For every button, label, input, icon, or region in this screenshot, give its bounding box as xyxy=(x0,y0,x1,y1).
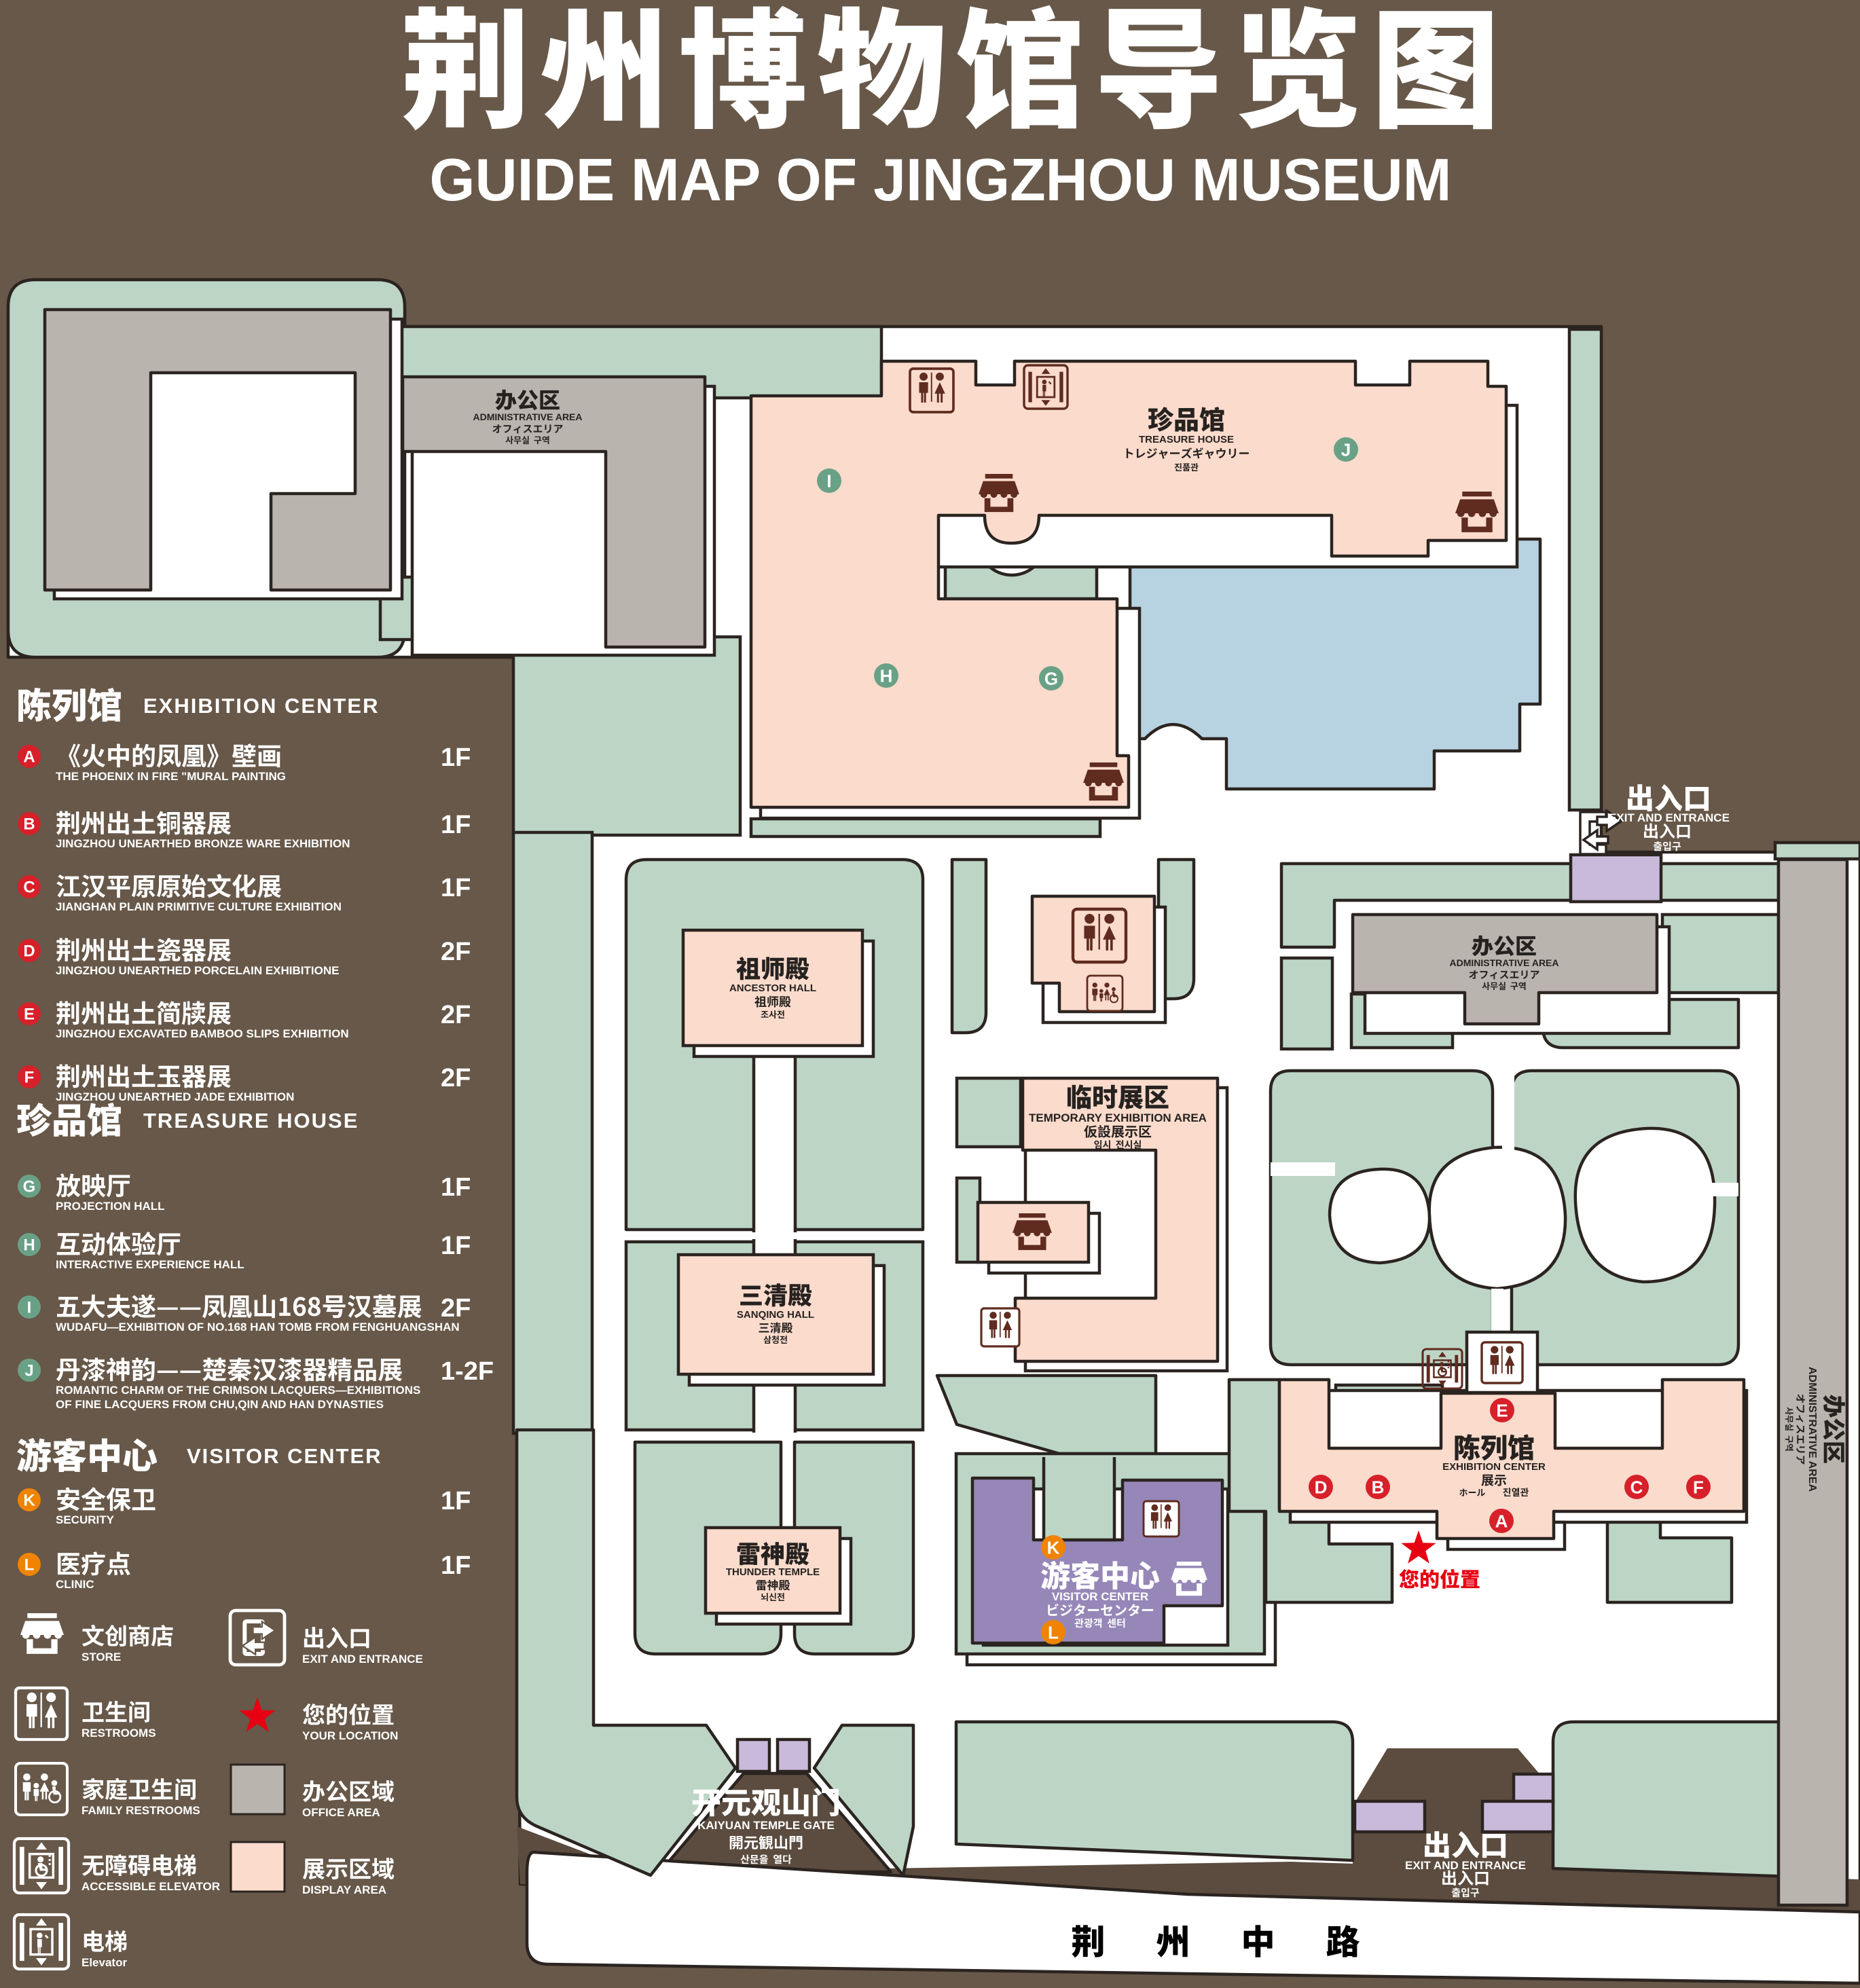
svg-text:DISPLAY AREA: DISPLAY AREA xyxy=(302,1883,386,1896)
svg-text:B: B xyxy=(1372,1477,1385,1497)
svg-text:EXIT AND ENTRANCE: EXIT AND ENTRANCE xyxy=(1405,1859,1526,1872)
svg-text:1F: 1F xyxy=(441,1232,471,1260)
svg-text:TREASURE HOUSE: TREASURE HOUSE xyxy=(143,1109,359,1133)
svg-text:1F: 1F xyxy=(441,1487,471,1515)
svg-text:JINGZHOU UNEARTHED PORCELAIN E: JINGZHOU UNEARTHED PORCELAIN EXHIBITIONE xyxy=(56,964,339,977)
svg-text:1F: 1F xyxy=(441,1551,471,1580)
svg-text:EXIT AND ENTRANCE: EXIT AND ENTRANCE xyxy=(1609,811,1730,824)
svg-text:INTERACTIVE EXPERIENCE HALL: INTERACTIVE EXPERIENCE HALL xyxy=(56,1258,244,1271)
svg-text:1F: 1F xyxy=(441,1173,471,1202)
svg-text:I: I xyxy=(826,471,831,491)
svg-text:Elevator: Elevator xyxy=(81,1956,127,1969)
svg-text:H: H xyxy=(880,665,893,686)
svg-text:G: G xyxy=(1044,668,1058,688)
svg-text:CLINIC: CLINIC xyxy=(56,1578,94,1591)
svg-text:E: E xyxy=(1496,1400,1508,1420)
svg-text:SECURITY: SECURITY xyxy=(56,1513,115,1526)
svg-text:VISITOR CENTER: VISITOR CENTER xyxy=(1052,1590,1148,1603)
svg-text:EXHIBITION CENTER: EXHIBITION CENTER xyxy=(1442,1461,1546,1473)
svg-text:L: L xyxy=(1048,1622,1059,1642)
svg-text:WUDAFU—EXHIBITION OF NO.168 HA: WUDAFU—EXHIBITION OF NO.168 HAN TOMB FRO… xyxy=(56,1321,460,1333)
svg-text:L: L xyxy=(24,1556,35,1575)
svg-text:D: D xyxy=(23,942,35,961)
svg-text:EXIT AND ENTRANCE: EXIT AND ENTRANCE xyxy=(302,1653,423,1665)
svg-text:1F: 1F xyxy=(441,811,471,839)
svg-text:KAIYUAN TEMPLE GATE: KAIYUAN TEMPLE GATE xyxy=(697,1819,835,1832)
svg-text:OF FINE LACQUERS FROM CHU,QIN: OF FINE LACQUERS FROM CHU,QIN AND HAN DY… xyxy=(56,1398,384,1411)
svg-text:STORE: STORE xyxy=(81,1651,121,1663)
svg-text:2F: 2F xyxy=(441,1064,471,1092)
svg-text:F: F xyxy=(24,1069,35,1087)
svg-text:YOUR LOCATION: YOUR LOCATION xyxy=(302,1729,398,1742)
svg-text:JINGZHOU UNEARTHED BRONZE WARE: JINGZHOU UNEARTHED BRONZE WARE EXHIBITIO… xyxy=(56,837,350,850)
svg-text:C: C xyxy=(1630,1477,1643,1497)
svg-text:ANCESTOR HALL: ANCESTOR HALL xyxy=(729,982,816,994)
svg-text:1F: 1F xyxy=(441,874,471,902)
svg-text:TEMPORARY EXHIBITION AREA: TEMPORARY EXHIBITION AREA xyxy=(1029,1111,1207,1124)
svg-text:E: E xyxy=(24,1006,35,1024)
svg-text:J: J xyxy=(24,1362,33,1380)
svg-text:K: K xyxy=(1047,1537,1060,1558)
svg-text:A: A xyxy=(1495,1511,1508,1531)
svg-text:2F: 2F xyxy=(441,938,471,966)
svg-text:PROJECTION HALL: PROJECTION HALL xyxy=(56,1200,165,1213)
svg-text:J: J xyxy=(1341,439,1351,460)
svg-text:VISITOR CENTER: VISITOR CENTER xyxy=(187,1444,382,1468)
svg-text:C: C xyxy=(23,879,35,897)
svg-text:K: K xyxy=(23,1492,35,1510)
svg-text:2F: 2F xyxy=(441,1001,471,1029)
svg-text:I: I xyxy=(27,1299,32,1317)
svg-text:B: B xyxy=(23,815,35,834)
svg-text:ADMINISTRATIVE AREA: ADMINISTRATIVE AREA xyxy=(1450,957,1559,968)
svg-text:ACCESSIBLE ELEVATOR: ACCESSIBLE ELEVATOR xyxy=(81,1880,220,1893)
svg-text:GUIDE MAP OF JINGZHOU MUSEUM: GUIDE MAP OF JINGZHOU MUSEUM xyxy=(430,146,1452,213)
svg-text:SANQING HALL: SANQING HALL xyxy=(737,1309,814,1321)
svg-text:1-2F: 1-2F xyxy=(441,1357,494,1386)
svg-text:F: F xyxy=(1693,1477,1704,1497)
svg-text:1F: 1F xyxy=(441,743,471,772)
svg-text:JIANGHAN PLAIN PRIMITIVE CULTU: JIANGHAN PLAIN PRIMITIVE CULTURE EXHIBIT… xyxy=(56,900,342,913)
svg-text:H: H xyxy=(23,1236,35,1255)
svg-text:RESTROOMS: RESTROOMS xyxy=(81,1727,156,1739)
svg-text:THUNDER TEMPLE: THUNDER TEMPLE xyxy=(726,1566,820,1578)
svg-text:D: D xyxy=(1315,1477,1328,1497)
svg-text:JINGZHOU EXCAVATED BAMBOO SLIP: JINGZHOU EXCAVATED BAMBOO SLIPS EXHIBITI… xyxy=(56,1027,349,1040)
svg-text:FAMILY RESTROOMS: FAMILY RESTROOMS xyxy=(81,1804,200,1817)
svg-text:G: G xyxy=(23,1178,36,1196)
svg-text:2F: 2F xyxy=(441,1294,471,1323)
svg-text:ROMANTIC CHARM OF THE CRIMSON: ROMANTIC CHARM OF THE CRIMSON LACQUERS—E… xyxy=(56,1384,420,1397)
svg-text:JINGZHOU UNEARTHED JADE EXHIBI: JINGZHOU UNEARTHED JADE EXHIBITION xyxy=(56,1090,294,1103)
svg-text:EXHIBITION CENTER: EXHIBITION CENTER xyxy=(143,694,379,718)
svg-text:THE PHOENIX IN FIRE "MURAL PAI: THE PHOENIX IN FIRE "MURAL PAINTING xyxy=(56,770,286,783)
svg-text:OFFICE AREA: OFFICE AREA xyxy=(302,1806,380,1819)
svg-text:TREASURE HOUSE: TREASURE HOUSE xyxy=(1139,434,1234,445)
svg-text:A: A xyxy=(23,748,35,767)
svg-text:ADMINISTRATIVE AREA: ADMINISTRATIVE AREA xyxy=(473,411,583,422)
svg-text:ADMINISTRATIVE AREA: ADMINISTRATIVE AREA xyxy=(1806,1367,1818,1492)
